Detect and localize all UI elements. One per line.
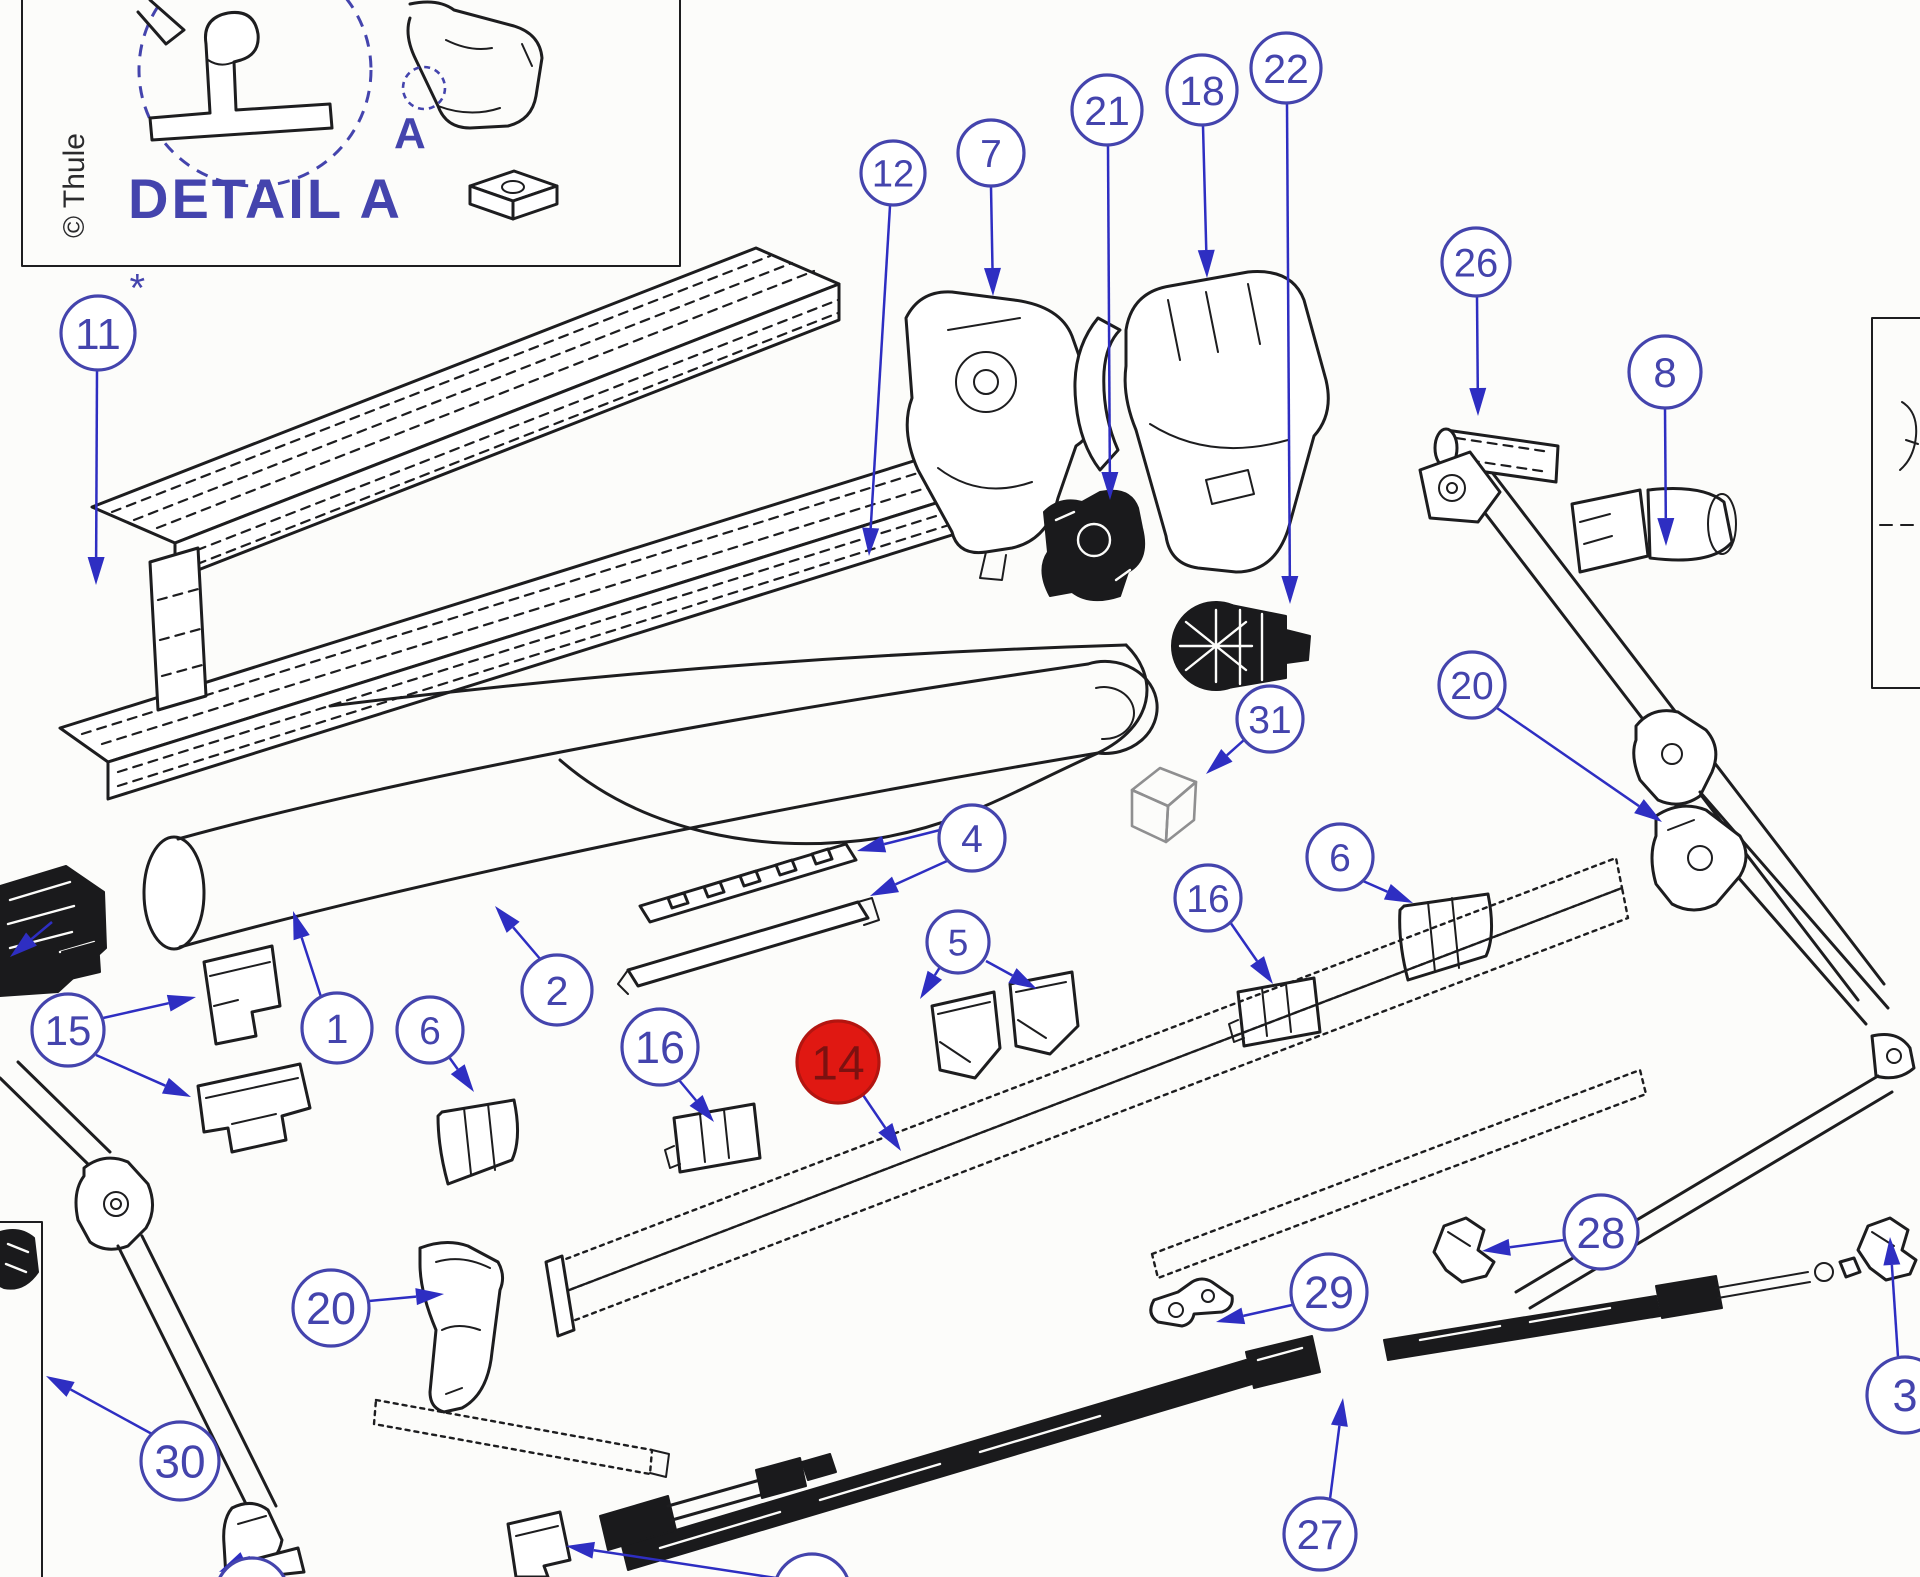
arm-shoulder-roller — [1420, 429, 1558, 522]
callout-number: 22 — [1263, 46, 1309, 92]
callout-number: 16 — [635, 1022, 685, 1073]
callout-6R: 6 — [1307, 824, 1413, 903]
callout-2: 2 — [495, 906, 592, 1025]
tension-rod-27 — [600, 1336, 1320, 1570]
castellated-block-6-left — [438, 1100, 518, 1184]
callout-31: 31 — [1206, 686, 1303, 774]
callout-number: 21 — [1084, 88, 1130, 134]
callout-11: 11* — [61, 267, 145, 585]
arm-end-cap — [1572, 489, 1736, 573]
mounting-strips — [618, 844, 879, 994]
callout-4: 4 — [857, 805, 1005, 896]
arm-knee-bracket — [1652, 806, 1746, 910]
callout-number: 18 — [1179, 68, 1225, 114]
callout-number: 28 — [1577, 1209, 1626, 1258]
callout-number: 15 — [45, 1007, 92, 1054]
callout-number: 1 — [326, 1006, 349, 1052]
callout-14: 14 — [797, 1021, 901, 1151]
detail-a-block — [470, 171, 557, 219]
callout-number: 11 — [75, 310, 121, 359]
callout-number: 20 — [1450, 665, 1493, 708]
ribbed-drum — [1172, 602, 1310, 690]
cap-blocks-5 — [932, 972, 1078, 1078]
callout-number: 7 — [980, 133, 1002, 176]
foam-block — [1132, 768, 1196, 842]
callout-number: 3 — [1892, 1370, 1917, 1421]
arm-elbow — [1634, 711, 1716, 805]
motor — [0, 866, 106, 996]
callout-number: 4 — [961, 818, 983, 861]
callout-number: 29 — [1304, 1267, 1354, 1318]
callout-number: 27 — [1297, 1511, 1344, 1558]
callout-number: 6 — [419, 1010, 441, 1053]
callout-27: 27 — [1284, 1398, 1356, 1570]
callout-asterisk: * — [129, 267, 145, 311]
latch-29 — [1151, 1279, 1232, 1326]
callout-20R: 20 — [1439, 652, 1662, 822]
clip-15a — [204, 946, 280, 1044]
callout-number: 8 — [1653, 349, 1676, 396]
callout-number: 14 — [811, 1037, 864, 1090]
callout-number: 5 — [948, 922, 969, 963]
callout-18: 18 — [1167, 55, 1237, 278]
detail-a-title: DETAIL A — [128, 167, 403, 230]
callout-number: 20 — [306, 1283, 356, 1334]
callout-15: 15 — [32, 994, 196, 1097]
detail-a-marker: A — [394, 109, 426, 158]
callout-16R: 16 — [1175, 865, 1273, 984]
loose-beam-left — [374, 1400, 669, 1477]
slider-block-16-left — [665, 1104, 760, 1172]
support-arm-right — [1420, 429, 1914, 1308]
callout-number: 6 — [1329, 837, 1351, 880]
callout-number: 30 — [154, 1436, 205, 1488]
inset-box-top-right — [1872, 318, 1920, 688]
callout-29: 29 — [1216, 1254, 1367, 1330]
copyright-text: © Thule — [58, 133, 91, 238]
callout-number: 2 — [546, 968, 569, 1014]
bracket-15b — [198, 1064, 310, 1152]
arm-lower-fitting — [1872, 1035, 1914, 1078]
callout-26: 26 — [1442, 228, 1510, 416]
detail-a-box: © Thule DETAIL A A — [22, 0, 680, 266]
callout-number: 16 — [1186, 878, 1229, 921]
profile-cross-section — [138, 0, 332, 140]
callout-number: 26 — [1454, 241, 1499, 285]
callout-number: 31 — [1248, 699, 1291, 742]
callout-16L: 16 — [622, 1009, 714, 1122]
callout-number: 12 — [872, 154, 914, 196]
callout-28: 28 — [1482, 1195, 1638, 1269]
callout-6L: 6 — [397, 997, 474, 1092]
clip-3 — [1858, 1218, 1916, 1280]
exploded-parts-diagram: © Thule DETAIL A A — [0, 0, 1920, 1577]
callout-7: 7 — [958, 120, 1024, 296]
bottom-bracket — [508, 1512, 570, 1577]
motor-bracket — [1042, 491, 1144, 600]
callout-1: 1 — [293, 911, 372, 1063]
inset-box-bottom-left — [0, 1222, 42, 1577]
cover-cap-20-left — [420, 1242, 503, 1412]
